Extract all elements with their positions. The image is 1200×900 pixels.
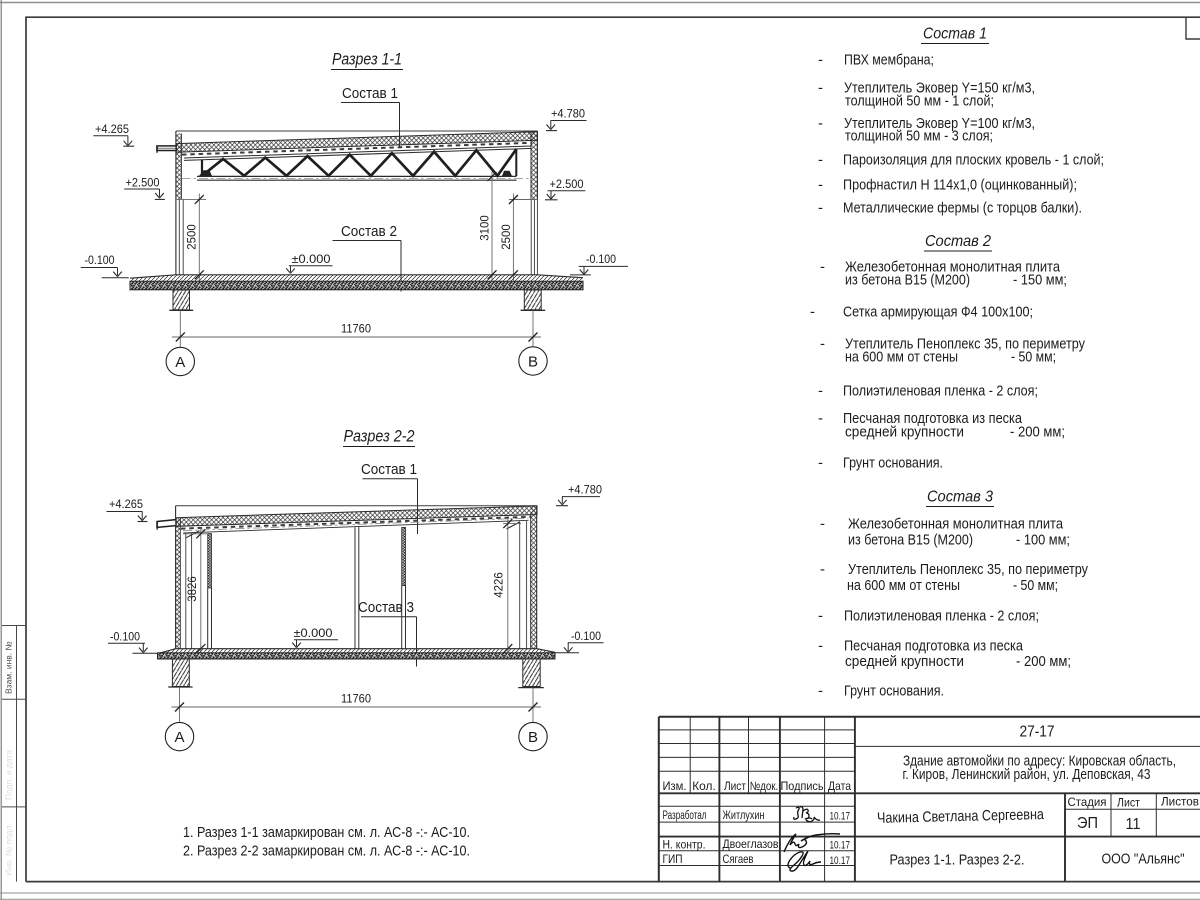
svg-text:3826: 3826 [187,576,199,602]
svg-text:-: - [818,638,823,655]
svg-text:-: - [818,115,823,132]
svg-text:А: А [175,354,185,371]
svg-text:из бетона В15 (М200): из бетона В15 (М200) [848,532,973,549]
svg-text:+4.780: +4.780 [568,482,602,496]
svg-text:-: - [820,336,825,353]
svg-text:-: - [820,516,825,533]
svg-text:Утеплитель Пеноплекс 35, по пе: Утеплитель Пеноплекс 35, по периметру [848,561,1088,578]
svg-text:В: В [528,354,538,371]
svg-text:Железобетонная монолитная пли: Железобетонная монолитная плита [848,516,1064,533]
svg-text:Лист: Лист [1117,796,1140,810]
svg-text:толщиной 50 мм - 3 слоя;: толщиной 50 мм - 3 слоя; [845,128,993,145]
svg-text:Профнастил Н 114х1,0 (оцинкова: Профнастил Н 114х1,0 (оцинкованный); [843,177,1077,194]
svg-text:- 200 мм;: - 200 мм; [1016,653,1071,670]
svg-text:Состав 1: Состав 1 [923,26,987,43]
svg-text:+2.500: +2.500 [550,177,584,191]
svg-text:толщиной 50 мм - 1 слой;: толщиной 50 мм - 1 слой; [845,93,994,110]
svg-text:2500: 2500 [187,224,199,250]
svg-text:1. Разрез 1-1 замаркирован см.: 1. Разрез 1-1 замаркирован см. л. АС-8 -… [183,824,470,841]
svg-text:±0.000: ±0.000 [292,252,331,266]
svg-text:№док.: №док. [750,779,779,793]
svg-text:11760: 11760 [341,694,371,706]
svg-text:Грунт основания.: Грунт основания. [844,683,944,700]
svg-text:Полиэтиленовая пленка - 2 слоя: Полиэтиленовая пленка - 2 слоя; [844,608,1039,625]
svg-text:-: - [818,608,823,625]
svg-text:Грунт основания.: Грунт основания. [843,455,943,472]
svg-text:-: - [818,410,823,427]
svg-text:Состав 1: Состав 1 [342,85,398,102]
svg-text:Состав 2: Состав 2 [341,223,397,240]
svg-text:10.17: 10.17 [830,840,851,852]
svg-text:г. Киров, Ленинский район, ул.: г. Киров, Ленинский район, ул. Деповская… [903,766,1151,783]
svg-text:Двоеглазов: Двоеглазов [723,837,779,851]
svg-text:+4.780: +4.780 [551,107,585,121]
svg-text:-: - [818,455,823,472]
svg-text:Листов: Листов [1161,795,1199,809]
svg-text:3100: 3100 [480,215,492,241]
svg-text:11: 11 [1126,816,1141,833]
svg-text:±0.000: ±0.000 [294,626,333,640]
svg-text:Разрез 2-2: Разрез 2-2 [344,427,415,446]
svg-text:- 100 мм;: - 100 мм; [1016,532,1070,549]
svg-text:-0.100: -0.100 [586,252,616,266]
svg-text:Изм.: Изм. [663,779,687,793]
svg-text:4226: 4226 [494,572,506,598]
svg-text:ПВХ мембрана;: ПВХ мембрана; [844,52,934,69]
svg-text:-: - [818,200,823,217]
svg-text:Разрез 1-1: Разрез 1-1 [332,50,402,69]
svg-text:-: - [818,383,823,400]
svg-text:-0.100: -0.100 [571,629,601,643]
svg-text:Состав 1: Состав 1 [361,461,417,478]
svg-text:Житлухин: Житлухин [723,808,765,822]
svg-text:средней крупности: средней крупности [845,653,964,670]
svg-text:- 150 мм;: - 150 мм; [1013,272,1067,289]
svg-text:Дата: Дата [828,779,851,793]
svg-text:Сягаев: Сягаев [723,852,754,866]
svg-text:-: - [818,52,823,69]
svg-text:ЭП: ЭП [1077,815,1098,832]
svg-text:- 50 мм;: - 50 мм; [1013,577,1058,594]
svg-text:+2.500: +2.500 [126,175,160,189]
svg-text:+4.265: +4.265 [109,497,143,511]
svg-text:10.17: 10.17 [830,811,851,823]
svg-text:ООО "Альянс": ООО "Альянс" [1102,851,1185,868]
svg-text:А: А [174,729,184,746]
svg-text:ГИП: ГИП [663,854,683,866]
svg-text:- 50 мм;: - 50 мм; [1011,349,1056,366]
svg-text:Разрез 1-1. Разрез 2-2.: Разрез 1-1. Разрез 2-2. [890,852,1025,869]
svg-text:Пароизоляция для плоских крове: Пароизоляция для плоских кровель - 1 сло… [843,152,1104,169]
svg-text:Лист: Лист [724,779,746,793]
svg-text:-: - [810,304,815,321]
svg-text:В: В [528,729,538,746]
svg-text:Н. контр.: Н. контр. [663,840,706,852]
svg-text:27-17: 27-17 [1020,724,1055,741]
svg-text:средней крупности: средней крупности [845,424,964,441]
svg-text:из бетона В15 (М200): из бетона В15 (М200) [845,272,970,289]
svg-text:Взам. инв. №: Взам. инв. № [4,641,14,694]
svg-text:2500: 2500 [501,224,513,250]
svg-text:10.17: 10.17 [830,855,851,867]
svg-text:+4.265: +4.265 [95,122,129,136]
svg-text:-: - [818,683,823,700]
svg-text:Полиэтиленовая пленка - 2 слоя: Полиэтиленовая пленка - 2 слоя; [843,383,1038,400]
svg-text:-: - [820,561,825,578]
svg-text:- 200 мм;: - 200 мм; [1010,424,1065,441]
svg-text:на 600 мм от стены: на 600 мм от стены [845,349,958,366]
svg-text:Металлические фермы (с торцов: Металлические фермы (с торцов балки). [843,200,1082,217]
svg-text:2. Разрез 2-2 замаркирован см.: 2. Разрез 2-2 замаркирован см. л. АС-8 -… [183,843,470,860]
svg-text:-: - [818,80,823,97]
svg-text:-: - [818,152,823,169]
svg-text:Стадия: Стадия [1068,795,1107,809]
svg-text:-: - [818,177,823,194]
svg-text:на 600 мм от стены: на 600 мм от стены [847,577,960,594]
svg-text:Подп. и дата: Подп. и дата [4,750,14,800]
svg-text:Сетка армирующая Ф4 100х100;: Сетка армирующая Ф4 100х100; [843,304,1033,321]
svg-text:Кол.: Кол. [692,779,716,793]
svg-text:Инв. № подл.: Инв. № подл. [4,823,14,876]
svg-text:Песчаная подготовка из песка: Песчаная подготовка из песка [844,638,1024,655]
svg-text:-0.100: -0.100 [85,253,115,267]
svg-text:Разработал: Разработал [663,810,707,822]
svg-text:Состав 2: Состав 2 [925,233,991,250]
svg-text:Состав 3: Состав 3 [927,489,993,506]
svg-text:-0.100: -0.100 [110,630,140,644]
svg-text:-: - [820,259,825,276]
svg-text:Подпись: Подпись [781,779,824,793]
svg-text:Состав 3: Состав 3 [358,599,414,616]
svg-text:11760: 11760 [341,324,371,336]
